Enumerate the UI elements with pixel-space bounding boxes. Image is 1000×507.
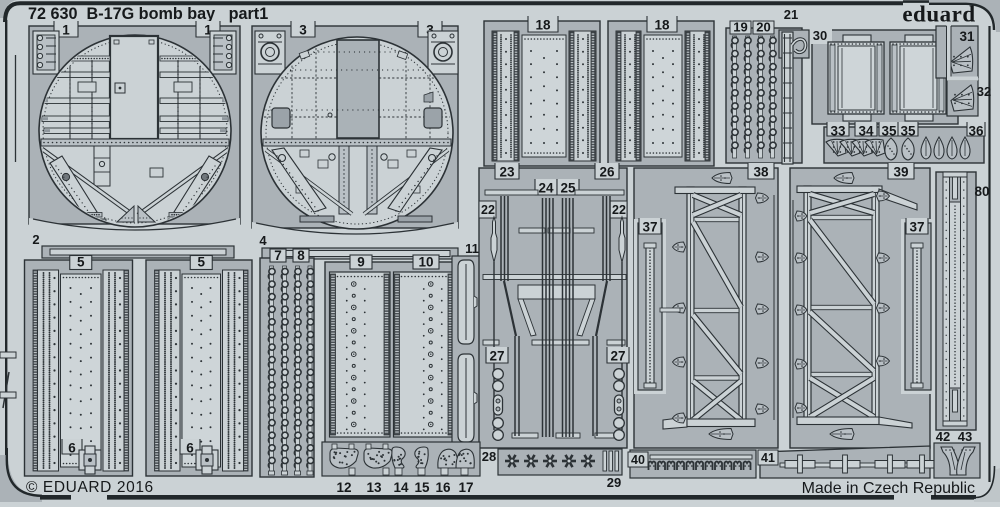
svg-text:36: 36 [968, 124, 984, 139]
svg-text:6: 6 [186, 441, 194, 456]
svg-text:16: 16 [435, 480, 451, 495]
svg-text:18: 18 [654, 18, 670, 33]
svg-text:4: 4 [259, 233, 267, 248]
svg-text:1: 1 [62, 23, 70, 38]
svg-text:9: 9 [357, 255, 365, 270]
svg-text:5: 5 [77, 255, 85, 270]
svg-text:26: 26 [599, 165, 615, 180]
svg-text:25: 25 [560, 181, 576, 196]
svg-text:43: 43 [958, 429, 972, 444]
svg-text:72 630 B-17G bomb bay part1: 72 630 B-17G bomb bay part1 [28, 5, 268, 23]
svg-text:35: 35 [881, 124, 897, 139]
svg-text:41: 41 [761, 451, 775, 465]
svg-text:37: 37 [909, 220, 924, 235]
svg-text:30: 30 [813, 28, 827, 43]
svg-text:7: 7 [274, 248, 282, 263]
svg-text:23: 23 [499, 165, 515, 180]
svg-text:14: 14 [393, 480, 409, 495]
svg-text:21: 21 [784, 7, 798, 22]
svg-text:80: 80 [974, 184, 989, 199]
svg-text:10: 10 [418, 255, 433, 270]
svg-text:39: 39 [893, 165, 908, 180]
svg-text:13: 13 [366, 480, 382, 495]
svg-text:18: 18 [535, 18, 551, 33]
svg-text:12: 12 [336, 480, 351, 495]
svg-text:28: 28 [482, 449, 496, 464]
svg-text:31: 31 [959, 29, 975, 44]
svg-text:42: 42 [936, 429, 950, 444]
svg-text:15: 15 [414, 480, 430, 495]
svg-text:5: 5 [197, 255, 205, 270]
svg-text:38: 38 [753, 165, 769, 180]
svg-text:eduard: eduard [902, 2, 975, 27]
svg-text:8: 8 [297, 248, 305, 263]
svg-text:27: 27 [489, 349, 504, 364]
svg-text:2: 2 [32, 232, 39, 247]
svg-text:27: 27 [610, 349, 625, 364]
svg-text:22: 22 [481, 203, 495, 217]
svg-text:40: 40 [631, 453, 645, 467]
svg-text:32: 32 [977, 84, 991, 99]
svg-text:3: 3 [299, 23, 307, 38]
svg-text:19: 19 [733, 20, 747, 35]
svg-text:22: 22 [612, 203, 626, 217]
svg-text:29: 29 [607, 475, 621, 490]
svg-text:34: 34 [858, 124, 874, 139]
svg-text:Made in Czech Republic: Made in Czech Republic [802, 480, 975, 497]
svg-text:37: 37 [642, 220, 657, 235]
svg-text:© EDUARD 2016: © EDUARD 2016 [26, 479, 154, 496]
svg-text:6: 6 [68, 441, 76, 456]
svg-text:11: 11 [465, 241, 479, 256]
svg-text:33: 33 [830, 124, 846, 139]
svg-text:20: 20 [756, 20, 770, 35]
svg-text:35: 35 [900, 124, 916, 139]
svg-text:24: 24 [538, 181, 554, 196]
svg-text:17: 17 [458, 480, 473, 495]
